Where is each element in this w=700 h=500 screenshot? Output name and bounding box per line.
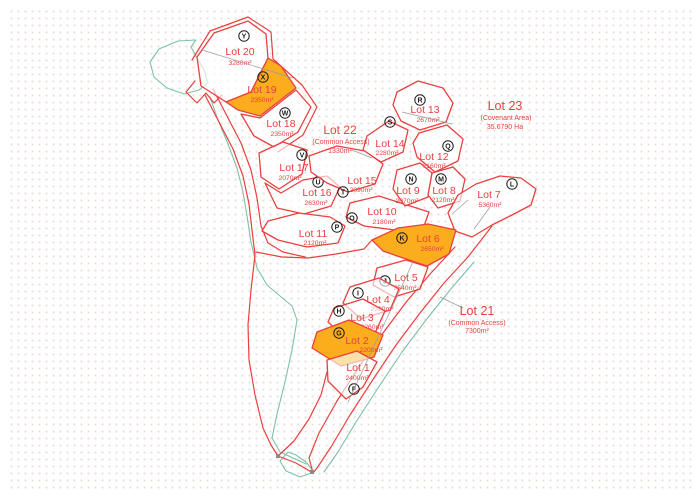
- svg-text:O: O: [349, 216, 355, 223]
- annotation-area: 1330m²: [328, 148, 352, 155]
- lot-area: 2070m²: [278, 175, 302, 182]
- survey-mark-square: [276, 454, 280, 458]
- annotation-name: Lot 21: [460, 304, 495, 318]
- lot-name: Lot 19: [247, 84, 276, 96]
- lot-9-parcel[interactable]: Lot 9 2070m² N: [393, 163, 432, 206]
- lot-letter-marker: S: [385, 117, 395, 127]
- lot-name: Lot 18: [266, 118, 295, 130]
- lot-name: Lot 14: [375, 138, 404, 150]
- southwest-wedge-boundary: [278, 372, 327, 456]
- lot-21-annotation: Lot 21 (Common Access) 7300m²: [448, 304, 505, 335]
- lot-name: Lot 16: [302, 187, 331, 199]
- lot-14-parcel[interactable]: Lot 14 2280m² S: [363, 117, 408, 162]
- lot-name: Lot 20: [225, 46, 254, 58]
- plan-svg: Lot 20 3280m² Y Lot 19 2350m² X Lot 18: [0, 0, 700, 500]
- lot-name: Lot 2: [345, 335, 369, 347]
- lot-area: 2180m²: [372, 219, 396, 226]
- lot-area: 2120m²: [303, 240, 327, 247]
- annotation-name: Lot 23: [488, 99, 523, 113]
- lot-name: Lot 7: [477, 189, 501, 201]
- svg-text:Q: Q: [445, 144, 451, 151]
- lot-area: 2350m²: [250, 97, 274, 104]
- svg-text:G: G: [336, 331, 342, 338]
- svg-text:Y: Y: [242, 34, 247, 41]
- svg-text:P: P: [335, 225, 340, 232]
- parcels-group: Lot 20 3280m² Y Lot 19 2350m² X Lot 18: [197, 21, 536, 399]
- lot-1-parcel[interactable]: Lot 1 2400m² F: [327, 351, 377, 399]
- lot-name: Lot 9: [396, 185, 420, 197]
- svg-text:H: H: [336, 309, 341, 316]
- lot-name: Lot 11: [299, 228, 328, 240]
- lot-area: 2200m²: [359, 347, 383, 354]
- svg-text:S: S: [388, 120, 393, 127]
- annotation-sub: (Common Access): [312, 139, 369, 146]
- svg-text:V: V: [300, 153, 305, 160]
- lot-name: Lot 10: [367, 206, 396, 218]
- lot-area: 2090m²: [349, 187, 373, 194]
- lot-name: Lot 12: [419, 151, 448, 163]
- svg-text:K: K: [399, 236, 404, 243]
- subdivision-plan-map: Lot 20 3280m² Y Lot 19 2350m² X Lot 18: [0, 0, 700, 500]
- lot-area: 2650m²: [420, 246, 444, 253]
- bottom-coast-inlet: [280, 452, 314, 477]
- svg-text:R: R: [417, 98, 422, 105]
- lot-name: Lot 8: [432, 185, 456, 197]
- lot-13-parcel[interactable]: Lot 13 2670m² R: [393, 81, 453, 130]
- svg-text:X: X: [261, 75, 266, 82]
- annotation-area: 35.6790 Ha: [487, 124, 523, 131]
- lot-area: 2120m²: [431, 197, 455, 204]
- svg-text:L: L: [510, 182, 515, 189]
- svg-text:M: M: [438, 177, 444, 184]
- lot-name: Lot 5: [394, 272, 418, 284]
- svg-text:N: N: [408, 177, 413, 184]
- lot-name: Lot 13: [410, 104, 439, 116]
- svg-text:I: I: [357, 291, 359, 298]
- lot-area: 2280m²: [375, 150, 399, 157]
- lot-area: 5360m²: [478, 202, 502, 209]
- lot-name: Lot 1: [346, 362, 370, 374]
- annotation-area: 7300m²: [465, 328, 489, 335]
- lot-area: 3280m²: [228, 60, 252, 67]
- lot-name: Lot 15: [347, 175, 376, 187]
- lot-area: 2070m²: [395, 198, 419, 205]
- annotation-sub: (Common Access): [448, 320, 505, 327]
- lot-name: Lot 17: [279, 162, 308, 174]
- svg-text:T: T: [341, 190, 346, 197]
- annotation-name: Lot 22: [323, 123, 357, 137]
- lot-name: Lot 6: [416, 233, 440, 245]
- lot-area: 2350m²: [270, 131, 294, 138]
- lot-11-parcel[interactable]: Lot 11 2120m² P: [262, 213, 345, 247]
- survey-mark-square: [310, 470, 314, 474]
- annotation-sub: (Covenant Area): [481, 115, 532, 122]
- lot-area: 2400m²: [345, 375, 369, 382]
- svg-text:W: W: [282, 111, 289, 118]
- lot-23-annotation: Lot 23 (Covenant Area) 35.6790 Ha: [481, 99, 532, 131]
- lot-area: 2630m²: [304, 200, 328, 207]
- svg-text:U: U: [315, 180, 320, 187]
